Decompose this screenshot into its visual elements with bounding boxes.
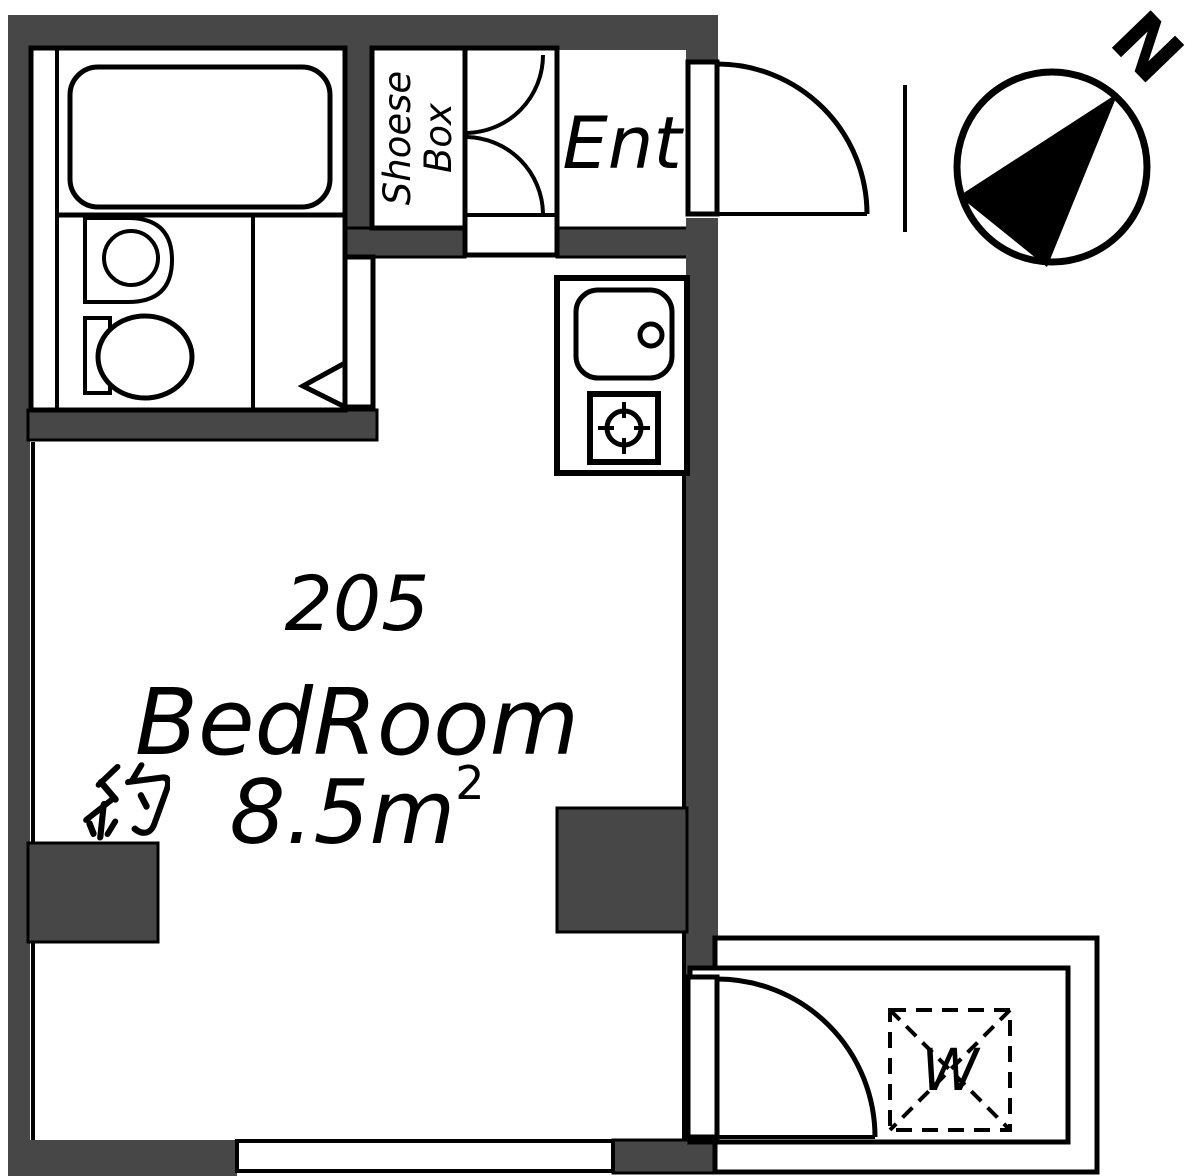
entrance-door-arc <box>717 64 867 214</box>
bathtub <box>70 67 330 207</box>
shoe-box-line1: Shoese <box>378 71 419 205</box>
entrance-door-leaf <box>688 62 717 214</box>
room-area: 8.5m 2 <box>82 760 632 865</box>
room-area-value: 8.5m <box>230 761 456 864</box>
wall-below-bathroom <box>28 410 377 440</box>
wall-strip-bath-shoebox <box>345 48 372 230</box>
window-bottom <box>237 1141 613 1171</box>
wall-bottom-right <box>613 1140 718 1173</box>
floor-plan: Shoese Box Ent 205 BedRoom 8.5m 2 W N <box>0 0 1200 1176</box>
room-area-superscript: 2 <box>455 756 484 810</box>
kitchen <box>557 278 687 473</box>
bathroom <box>31 48 373 410</box>
washing-machine-label: W <box>890 1010 1010 1130</box>
balcony-door-leaf <box>688 977 717 1137</box>
shoe-box-label-text: Shoese Box <box>378 71 460 205</box>
wall-left <box>8 15 30 1176</box>
wall-bottom-left <box>8 1140 237 1176</box>
shoe-box-label: Shoese Box <box>372 48 465 228</box>
kanji-yaku-icon <box>82 760 170 848</box>
wall-top <box>8 15 718 50</box>
entrance-label: Ent <box>556 95 688 190</box>
kitchen-faucet-icon <box>640 324 662 346</box>
wall-right <box>686 218 718 977</box>
wall-under-entrance <box>557 228 688 257</box>
entrance-door <box>688 62 905 232</box>
toilet-bowl-icon <box>98 316 192 398</box>
wash-basin-icon <box>104 231 158 285</box>
bathroom-door-leaf <box>345 257 373 407</box>
shoe-box-line2: Box <box>419 71 460 205</box>
unit-number: 205 <box>157 558 557 648</box>
compass <box>957 72 1147 267</box>
